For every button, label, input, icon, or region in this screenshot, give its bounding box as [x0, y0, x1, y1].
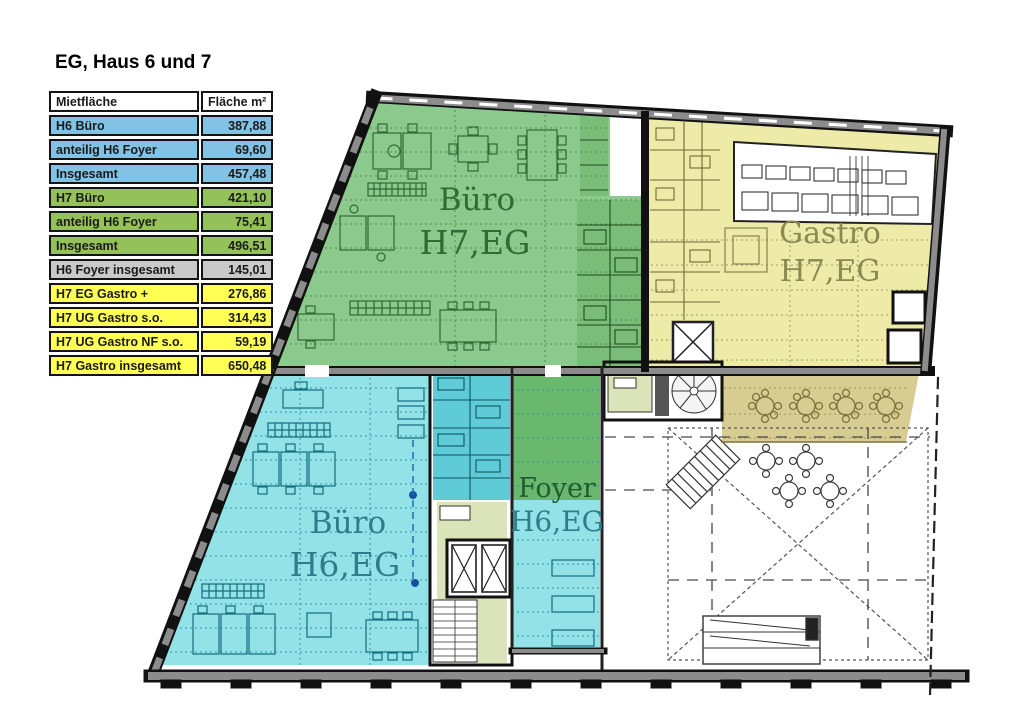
property-line: [930, 378, 938, 695]
core-h6-rooms: [433, 373, 510, 500]
table-row: anteilig H6 Foyer 75,41: [49, 211, 273, 232]
table-row: H6 Foyer insgesamt 145,01: [49, 259, 273, 280]
label-h7-buero-1: Büro: [439, 182, 515, 218]
zone-h7-notch: [610, 112, 646, 196]
table-header-row: Mietfläche Fläche m²: [49, 91, 273, 112]
zone-h6-buero: [157, 373, 430, 665]
col-mietflaeche: Mietfläche: [49, 91, 199, 112]
area-table: Mietfläche Fläche m² H6 Büro 387,88 ante…: [47, 88, 275, 379]
door-gap: [305, 365, 329, 377]
court-table: [773, 475, 806, 508]
stairs-icon: [433, 600, 477, 662]
door-gap: [545, 365, 561, 377]
table-row: H7 Gastro insgesamt 650,48: [49, 355, 273, 376]
table-row: anteilig H6 Foyer 69,60: [49, 139, 273, 160]
table-row: Insgesamt 457,48: [49, 163, 273, 184]
elevators-icon: [447, 540, 510, 597]
table-row: H7 Büro 421,10: [49, 187, 273, 208]
stage-structure: [703, 616, 820, 664]
table-row: Insgesamt 496,51: [49, 235, 273, 256]
label-gastro-1: Gastro: [779, 216, 881, 251]
gastro-elevator-icon: [673, 322, 713, 362]
floorplan-page: Büro H7,EG Gastro H7,EG Büro H6,EG Foyer…: [0, 0, 1024, 702]
table-row: H7 UG Gastro s.o. 314,43: [49, 307, 273, 328]
table-row: H7 UG Gastro NF s.o. 59,19: [49, 331, 273, 352]
court-table: [814, 475, 847, 508]
table-row: H7 EG Gastro + 276,86: [49, 283, 273, 304]
page-title: EG, Haus 6 und 7: [55, 52, 211, 74]
label-h6-buero-2: H6,EG: [290, 545, 401, 584]
zone-terrace: [722, 368, 920, 442]
label-h7-buero-2: H7,EG: [420, 223, 531, 262]
court-table: [790, 445, 823, 478]
core-room-box: [440, 506, 470, 520]
label-gastro-2: H7,EG: [780, 254, 881, 289]
court-table: [750, 445, 783, 478]
courtyard: [605, 428, 930, 664]
diagonal-stair: [666, 435, 740, 509]
h7-rooms-top: [580, 116, 608, 196]
col-flaeche: Fläche m²: [201, 91, 273, 112]
label-foyer-2: H6,EG: [510, 505, 604, 538]
label-foyer-1: Foyer: [518, 473, 596, 504]
label-h6-buero-1: Büro: [310, 505, 386, 541]
marker-dot: [411, 579, 419, 587]
table-row: H6 Büro 387,88: [49, 115, 273, 136]
